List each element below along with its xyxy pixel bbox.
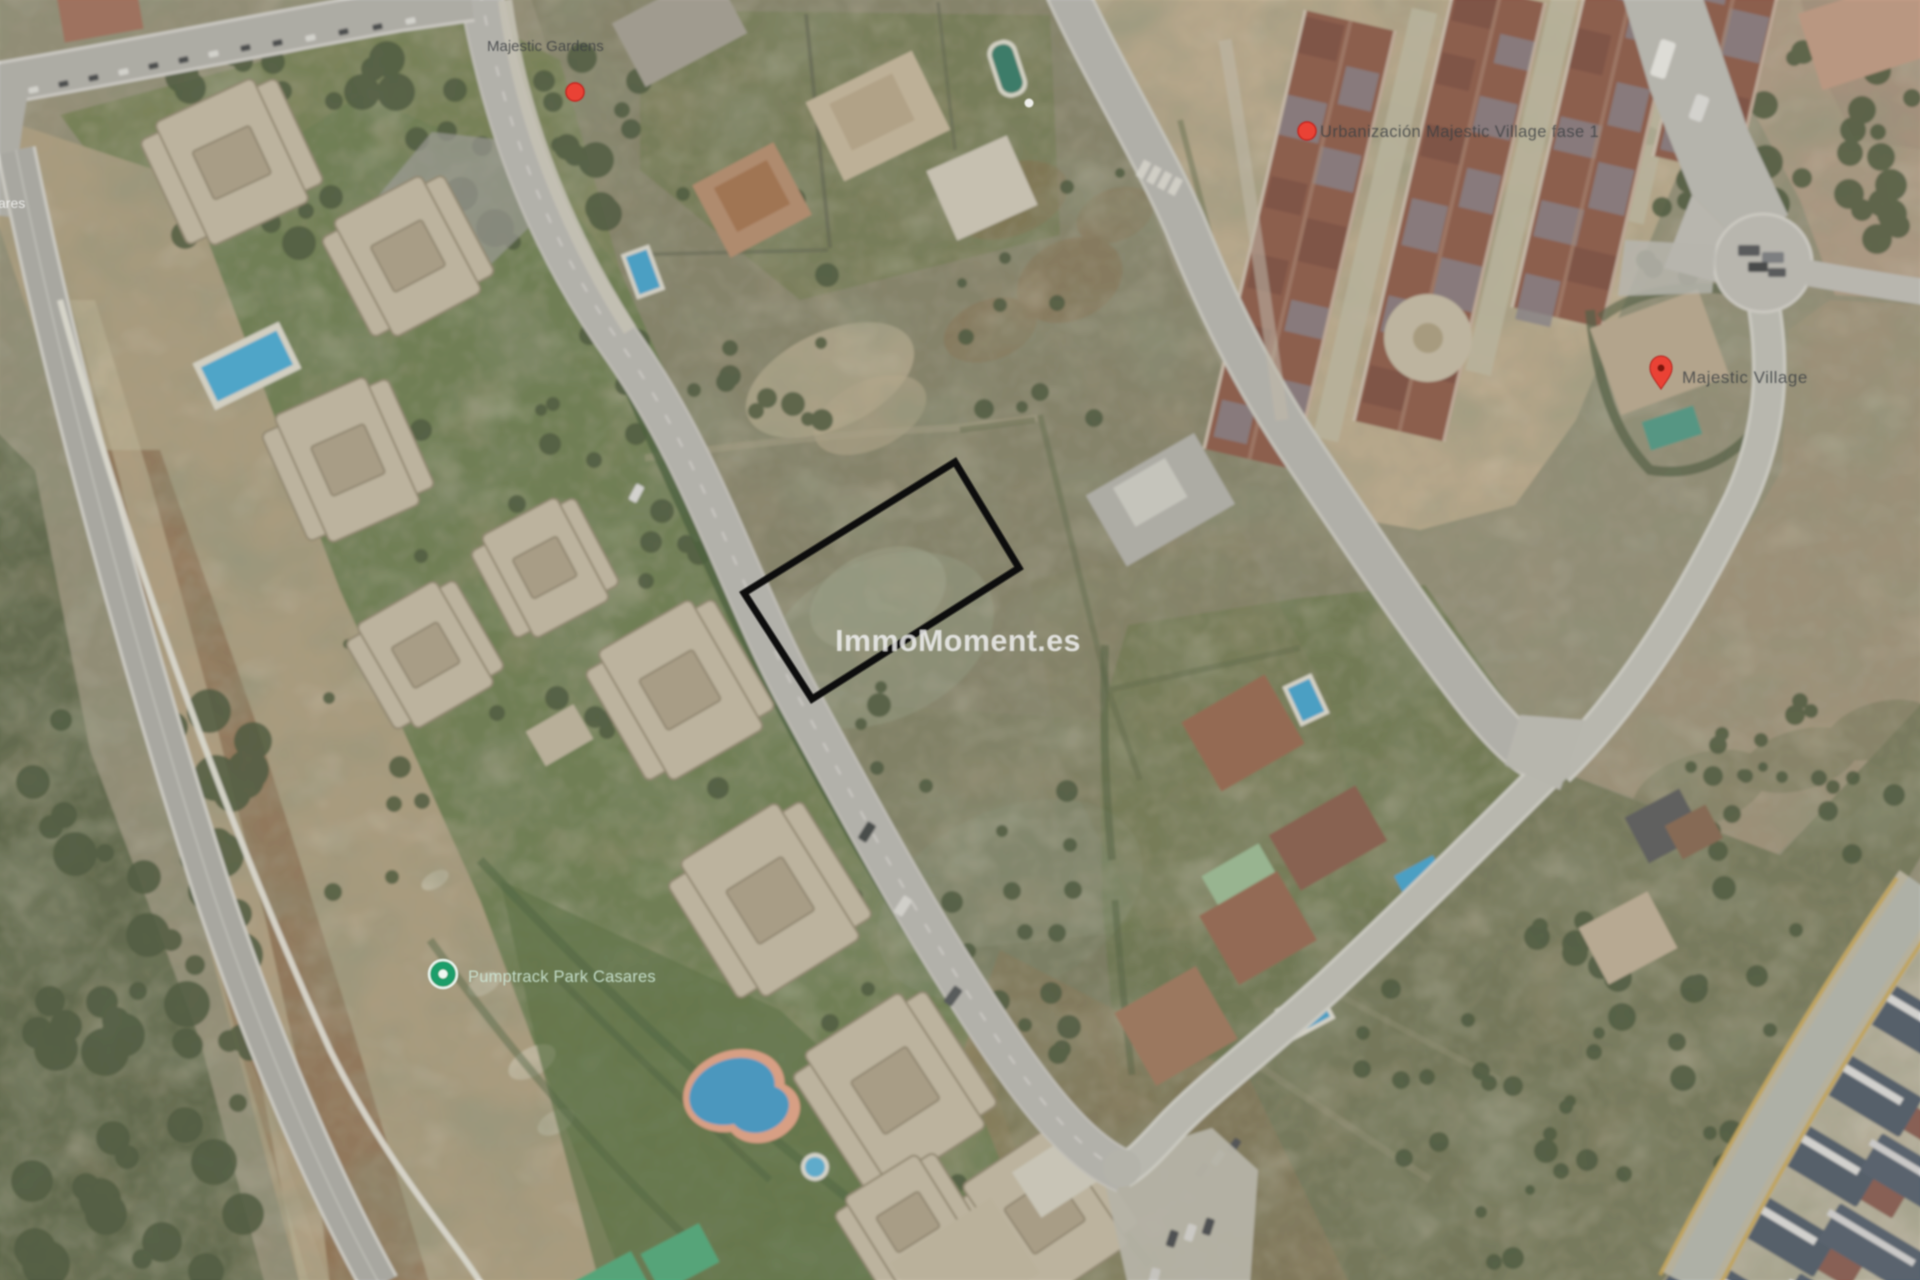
svg-text:ImmoMoment.es: ImmoMoment.es xyxy=(835,624,1081,658)
svg-text:Urbanización Majestic Village: Urbanización Majestic Village fase 1 xyxy=(1320,123,1599,141)
svg-text:Majestic Gardens: Majestic Gardens xyxy=(487,38,604,55)
svg-text:Pumptrack Park Casares: Pumptrack Park Casares xyxy=(468,968,656,986)
svg-text:Majestic Village: Majestic Village xyxy=(1682,368,1808,387)
svg-text:ares: ares xyxy=(0,195,25,211)
